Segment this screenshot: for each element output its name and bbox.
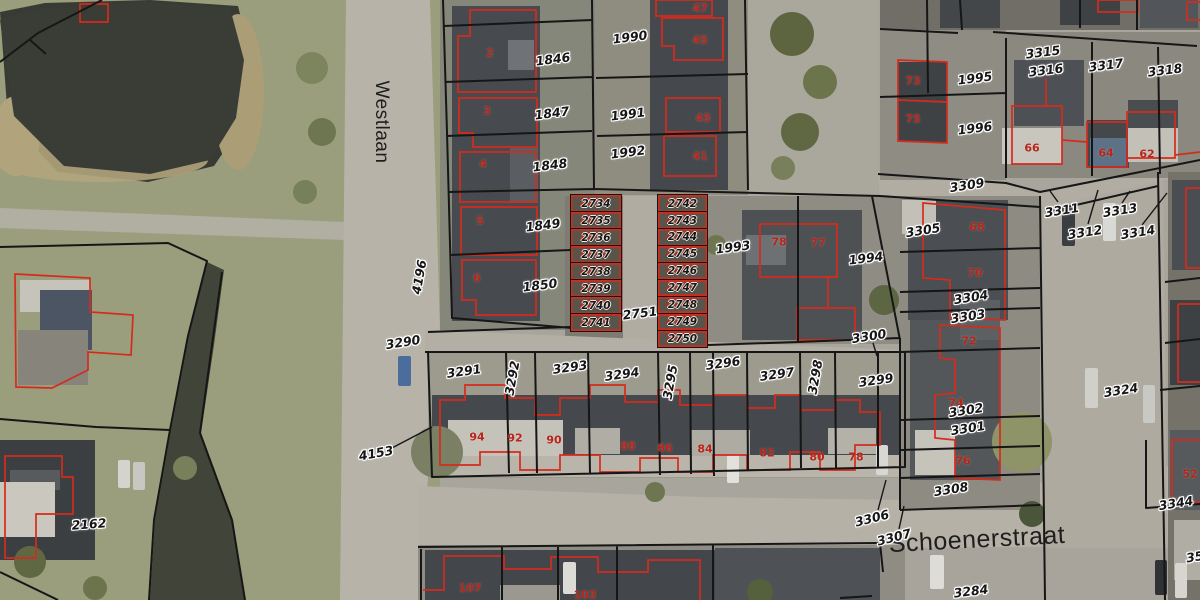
map-label-layer: Westlaan Schoenerstraat 1846184718481849… [0,0,1200,600]
parcel-number-label: 3317 [1088,55,1124,74]
parcel-number-label: 3284 [953,581,989,600]
parcel-number-label: 3312 [1067,222,1104,242]
parcel-number-label: 3295 [660,364,681,401]
house-number-label: 3 [483,105,491,118]
house-number-label: 41 [692,150,707,163]
house-number-label: 62 [1139,148,1154,161]
house-number-label: 78 [848,451,863,464]
parcel-number-label: 3303 [950,306,987,326]
parcel-number-label: 3294 [604,364,641,384]
parcel-number-label: 1847 [534,103,570,122]
house-number-label: 70 [967,267,982,280]
house-number-label: 72 [961,335,976,348]
house-number-label: 75 [905,113,920,126]
parcel-number-label: 3311 [1044,200,1081,220]
parcel-number-label: 3305 [905,220,942,240]
house-number-label: 90 [546,434,561,447]
parcel-number-label: 3308 [933,479,970,499]
parcel-number-label: 2162 [71,515,107,532]
house-number-label: 76 [955,455,970,468]
house-number-label: 2 [486,47,494,60]
parcel-number-label: 3292 [502,360,523,397]
parcel-number-label: 1990 [612,27,648,46]
map-viewport[interactable]: 2734273427352735273627362737273727382738… [0,0,1200,600]
house-number-label: 66 [1024,142,1039,155]
parcel-number-label: 3324 [1103,380,1140,400]
parcel-number-label: 3299 [858,370,895,390]
parcel-number-label: 3304 [953,287,990,307]
parcel-number-label: 4196 [409,259,430,296]
house-number-label: 47 [692,2,707,15]
parcel-number-label: 3290 [385,332,422,352]
house-number-label: 86 [657,442,672,455]
parcel-number-label: 3315 [1025,42,1061,61]
parcel-number-label: 3300 [851,326,888,346]
parcel-number-label: 1992 [610,142,646,161]
parcel-number-label: 3301 [950,418,987,438]
parcel-number-label: 1994 [848,248,884,267]
street-label-schoenerstraat: Schoenerstraat [888,521,1066,559]
parcel-number-label: 2751 [622,303,658,322]
parcel-number-label: 1849 [525,215,561,234]
house-number-label: 73 [905,75,920,88]
parcel-number-label: 4153 [358,443,395,464]
parcel-number-label: 3344 [1158,493,1195,513]
house-number-label: 94 [469,431,484,444]
parcel-number-label: 3318 [1147,60,1183,79]
parcel-number-label: 1993 [715,237,751,256]
house-number-label: 45 [692,34,707,47]
parcel-number-label: 1996 [957,118,993,137]
parcel-number-label: 1848 [532,155,568,174]
house-number-label: 84 [697,443,712,456]
street-label-westlaan: Westlaan [370,81,392,164]
parcel-number-label: 3291 [446,361,483,381]
parcel-number-label: 3293 [552,357,589,377]
parcel-number-label: 3298 [805,359,826,396]
house-number-label: 68 [969,221,984,234]
house-number-label: 64 [1098,147,1113,160]
parcel-number-label: 3313 [1102,200,1139,220]
house-number-label: 92 [507,432,522,445]
parcel-number-label: 3296 [705,353,742,373]
house-number-label: 107 [459,582,482,595]
parcel-number-label: 3316 [1028,60,1064,79]
house-number-label: 103 [574,589,597,600]
house-number-label: 77 [810,237,825,250]
parcel-number-label: 3297 [759,364,796,384]
house-number-label: 74 [948,397,963,410]
house-number-label: 43 [695,112,710,125]
house-number-label: 88 [620,440,635,453]
parcel-number-label: 1850 [522,275,558,294]
house-number-label: 52 [1182,468,1197,481]
house-number-label: 78 [771,236,786,249]
house-number-label: 6 [473,272,481,285]
house-number-label: 4 [479,158,487,171]
parcel-number-label: 359 [1185,547,1200,566]
parcel-number-label: 3306 [853,507,890,530]
parcel-number-label: 1846 [535,49,571,68]
house-number-label: 80 [809,451,824,464]
house-number-label: 82 [759,447,774,460]
parcel-number-label: 3309 [949,175,986,195]
house-number-label: 5 [476,215,484,228]
parcel-number-label: 1991 [610,104,646,123]
parcel-number-label: 1995 [957,68,993,87]
parcel-number-label: 3314 [1120,222,1157,242]
